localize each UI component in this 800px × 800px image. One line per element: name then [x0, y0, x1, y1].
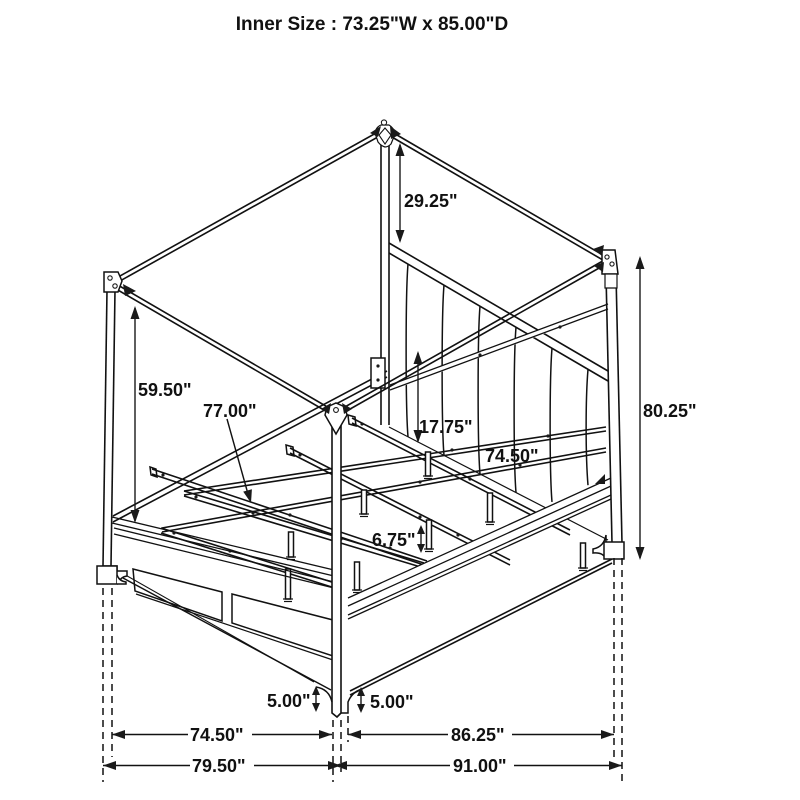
- svg-text:80.25": 80.25": [643, 401, 697, 421]
- svg-text:91.00": 91.00": [453, 756, 507, 776]
- svg-text:29.25": 29.25": [404, 191, 458, 211]
- svg-text:74.50": 74.50": [485, 446, 539, 466]
- svg-text:5.00": 5.00": [370, 692, 414, 712]
- svg-text:86.25": 86.25": [451, 725, 505, 745]
- svg-text:74.50": 74.50": [190, 725, 244, 745]
- svg-text:Inner Size : 73.25"W x 85.00"D: Inner Size : 73.25"W x 85.00"D: [236, 14, 509, 35]
- svg-text:17.75": 17.75": [419, 417, 473, 437]
- svg-text:77.00": 77.00": [203, 401, 257, 421]
- svg-text:5.00": 5.00": [267, 691, 311, 711]
- svg-text:79.50": 79.50": [192, 756, 246, 776]
- svg-text:59.50": 59.50": [138, 380, 192, 400]
- svg-text:6.75": 6.75": [372, 530, 416, 550]
